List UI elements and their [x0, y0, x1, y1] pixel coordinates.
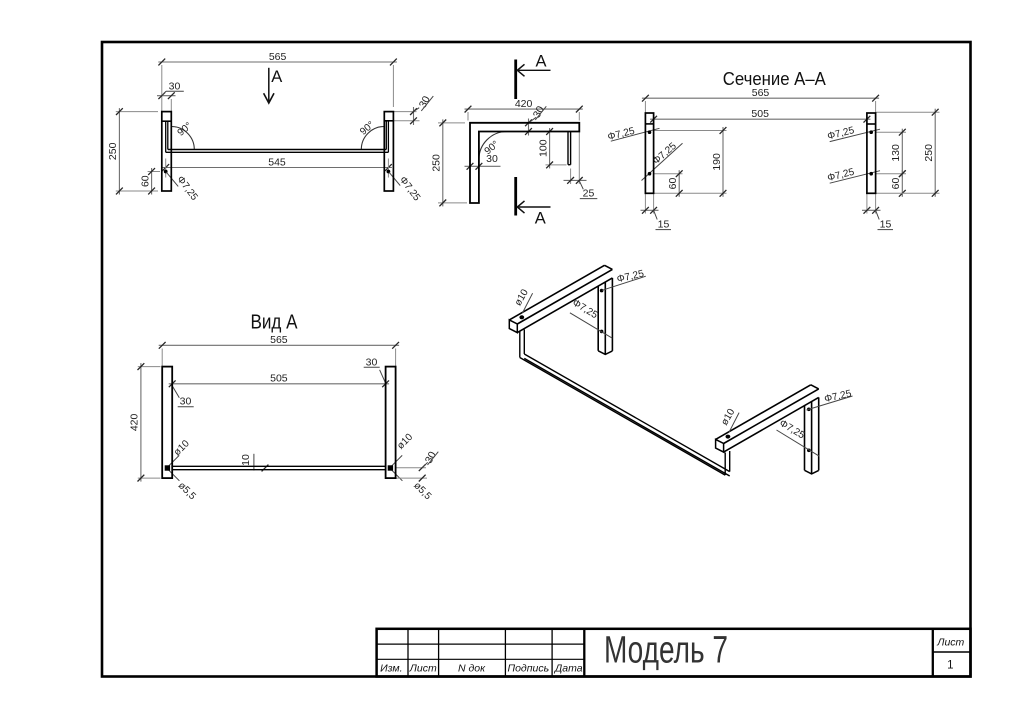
svg-text:60: 60 — [139, 175, 151, 187]
svg-text:190: 190 — [711, 153, 723, 171]
svg-text:545: 545 — [268, 156, 286, 168]
svg-text:505: 505 — [270, 373, 288, 385]
svg-text:1: 1 — [947, 660, 953, 672]
svg-text:30: 30 — [180, 396, 192, 408]
svg-text:N док: N док — [458, 663, 486, 675]
svg-text:565: 565 — [752, 87, 770, 99]
svg-text:25: 25 — [583, 188, 595, 200]
svg-text:30: 30 — [366, 357, 378, 369]
svg-text:Сечение А–А: Сечение А–А — [723, 68, 827, 89]
svg-text:250: 250 — [431, 154, 443, 172]
svg-text:420: 420 — [129, 413, 141, 431]
svg-text:60: 60 — [890, 178, 902, 190]
svg-text:250: 250 — [923, 144, 935, 162]
svg-text:15: 15 — [880, 219, 892, 231]
svg-text:Лист: Лист — [936, 637, 964, 649]
svg-text:15: 15 — [658, 219, 670, 231]
svg-text:Вид А: Вид А — [251, 312, 299, 334]
svg-text:Модель 7: Модель 7 — [604, 630, 728, 672]
svg-text:505: 505 — [751, 108, 769, 120]
svg-text:130: 130 — [890, 144, 902, 162]
svg-text:250: 250 — [107, 142, 119, 160]
svg-text:A: A — [535, 52, 546, 70]
svg-text:420: 420 — [515, 98, 533, 110]
svg-text:10: 10 — [240, 454, 252, 466]
svg-text:60: 60 — [667, 178, 679, 190]
svg-text:Изм.: Изм. — [380, 663, 402, 675]
svg-text:A: A — [271, 68, 282, 86]
svg-text:565: 565 — [269, 51, 287, 63]
svg-text:A: A — [535, 210, 546, 228]
svg-text:Дата: Дата — [554, 663, 583, 675]
svg-text:565: 565 — [270, 334, 288, 346]
svg-text:Лист: Лист — [409, 663, 437, 675]
svg-text:100: 100 — [537, 139, 549, 157]
svg-text:Подпись: Подпись — [507, 663, 549, 675]
